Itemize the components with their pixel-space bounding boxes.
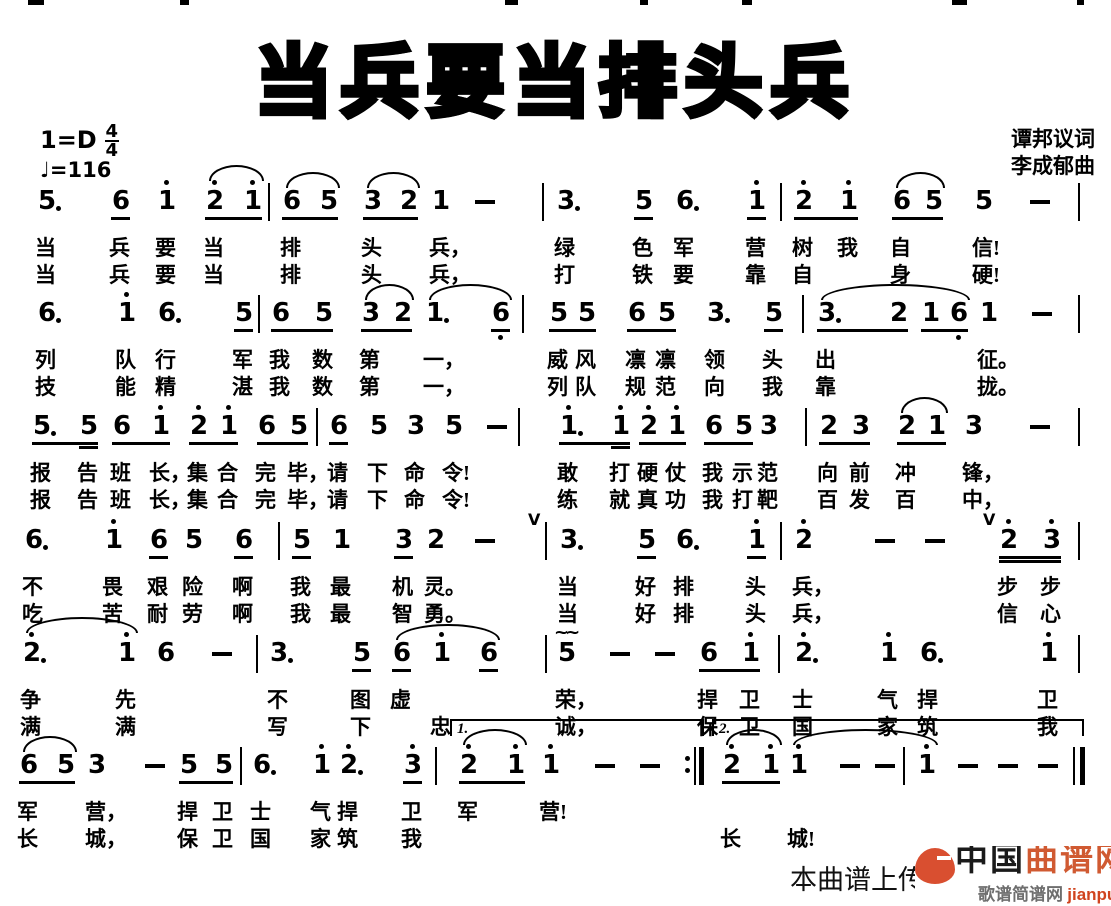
lyric-syllable: 城， bbox=[85, 823, 127, 853]
beam-line bbox=[149, 556, 168, 559]
lyric-syllable: 令! bbox=[442, 484, 470, 514]
beam-line bbox=[111, 217, 130, 220]
tempo-marking: ♩=116 bbox=[40, 158, 111, 182]
lyric-syllable: 长 bbox=[17, 823, 38, 853]
barline bbox=[258, 295, 260, 333]
beam-line bbox=[549, 329, 596, 332]
lyric-syllable: 啊 bbox=[232, 571, 253, 601]
lyric-syllable: 真 bbox=[637, 484, 658, 514]
lyric-syllable: 头 bbox=[745, 571, 766, 601]
lyric-syllable: 不 bbox=[267, 684, 288, 714]
beam-line bbox=[491, 329, 510, 332]
note-digit: 1 bbox=[244, 188, 262, 214]
lyric-syllable: 保 bbox=[177, 823, 198, 853]
note-digit: 5 bbox=[975, 188, 993, 214]
lyric-syllable: 队 bbox=[575, 371, 596, 401]
lyric-syllable: 国 bbox=[250, 823, 271, 853]
scan-artifact bbox=[1077, 0, 1084, 5]
lyric-syllable: 兵， bbox=[792, 571, 834, 601]
octave-dot-high bbox=[111, 519, 116, 524]
beam-line bbox=[627, 329, 676, 332]
note-digit: 2 bbox=[723, 752, 741, 778]
lyric-syllable: 班 bbox=[110, 457, 131, 487]
lyric-syllable: 卫 bbox=[739, 684, 760, 714]
lyric-syllable: 头 bbox=[361, 232, 382, 262]
lyric-syllable: 军 bbox=[457, 796, 478, 826]
augmentation-dot bbox=[694, 545, 699, 550]
beam-line bbox=[394, 556, 413, 559]
lyric-syllable: 毕， bbox=[287, 484, 329, 514]
lyric-syllable: 卫 bbox=[212, 823, 233, 853]
beam-line bbox=[892, 217, 943, 220]
note-digit: 5 bbox=[215, 752, 233, 778]
watermark-site: 歌谱简谱网 bbox=[978, 885, 1067, 904]
note-digit: 3 bbox=[362, 300, 380, 326]
lyric-syllable: 绿 bbox=[554, 232, 575, 262]
beam-line bbox=[352, 669, 371, 672]
barline bbox=[778, 635, 780, 673]
note-digit: 1 bbox=[220, 413, 238, 439]
barline bbox=[545, 635, 547, 673]
song-title: 当兵要当排头兵 bbox=[0, 20, 1111, 132]
scan-artifact bbox=[952, 0, 967, 5]
lyric-syllable: 长， bbox=[149, 484, 191, 514]
octave-dot-high bbox=[846, 180, 851, 185]
lyric-syllable: 兵 bbox=[109, 259, 130, 289]
lyric-syllable: 就 bbox=[609, 484, 630, 514]
time-signature: 44 bbox=[105, 124, 119, 158]
lyric-syllable: 自 bbox=[890, 232, 911, 262]
lyric-syllable: 士 bbox=[792, 684, 813, 714]
lyric-syllable: 艰 bbox=[147, 571, 168, 601]
note-digit: 1 bbox=[742, 640, 760, 666]
note-digit: 3 bbox=[407, 413, 425, 439]
lyric-syllable: 长 bbox=[720, 823, 741, 853]
augmentation-dot bbox=[578, 545, 583, 550]
note-digit: 3 bbox=[852, 413, 870, 439]
note-digit: 2 bbox=[394, 300, 412, 326]
note-digit: 3 bbox=[557, 188, 575, 214]
note-digit: 1 bbox=[432, 188, 450, 214]
beam-line bbox=[234, 329, 253, 332]
beam-line bbox=[722, 781, 780, 784]
lyric-syllable: 啊 bbox=[232, 598, 253, 628]
note-digit: 5 bbox=[293, 527, 311, 553]
lyric-syllable: 争 bbox=[20, 684, 41, 714]
duration-dash bbox=[640, 764, 660, 768]
barline bbox=[1078, 408, 1080, 446]
augmentation-dot bbox=[836, 318, 841, 323]
lyric-syllable: 告 bbox=[77, 457, 98, 487]
lyric-syllable: 规 bbox=[625, 371, 646, 401]
thick-barline bbox=[699, 747, 704, 785]
note-digit: 6 bbox=[628, 300, 646, 326]
note-digit: 5 bbox=[315, 300, 333, 326]
octave-dot-high bbox=[754, 180, 759, 185]
note-digit: 3 bbox=[88, 752, 106, 778]
repeat-dot bbox=[685, 756, 690, 761]
lyric-syllable: 我 bbox=[269, 371, 290, 401]
volta-label: 2. bbox=[719, 721, 730, 738]
logo-icon bbox=[915, 848, 955, 884]
note-digit: 5 bbox=[80, 413, 98, 439]
note-digit: 5 bbox=[638, 527, 656, 553]
lyric-syllable: 当 bbox=[35, 259, 56, 289]
lyric-syllable: 第 bbox=[359, 371, 380, 401]
note-digit: 5 bbox=[235, 300, 253, 326]
octave-dot-high bbox=[548, 744, 553, 749]
lyric-syllable: 营! bbox=[539, 796, 567, 826]
beam-line bbox=[897, 442, 946, 445]
octave-dot-high bbox=[158, 405, 163, 410]
note-digit: 5 bbox=[185, 527, 203, 553]
lyric-syllable: 险 bbox=[182, 571, 203, 601]
barline bbox=[802, 295, 804, 333]
lyric-syllable: 先 bbox=[115, 684, 136, 714]
lyric-syllable: 令! bbox=[442, 457, 470, 487]
breath-mark: V bbox=[983, 510, 995, 529]
lyric-syllable: 满 bbox=[115, 711, 136, 741]
note-digit: 5 bbox=[578, 300, 596, 326]
lyric-syllable: 列 bbox=[35, 344, 56, 374]
lyric-syllable: 军 bbox=[673, 232, 694, 262]
note-digit: 6 bbox=[283, 188, 301, 214]
lyric-syllable: 合 bbox=[217, 457, 238, 487]
note-digit: 1 bbox=[840, 188, 858, 214]
composer-credit: 李成郁曲 bbox=[1011, 153, 1095, 180]
augmentation-dot bbox=[358, 770, 363, 775]
lyric-syllable: 我 bbox=[762, 371, 783, 401]
duration-dash bbox=[840, 764, 860, 768]
lyric-syllable: 精 bbox=[155, 371, 176, 401]
barline bbox=[1078, 183, 1080, 221]
barline bbox=[545, 522, 547, 560]
lyric-syllable: 要 bbox=[155, 232, 176, 262]
beam-line-2 bbox=[999, 560, 1061, 563]
lyric-syllable: 步 bbox=[1040, 571, 1061, 601]
lyric-syllable: 第 bbox=[359, 344, 380, 374]
beam-line-2 bbox=[611, 446, 630, 449]
beam-line bbox=[403, 781, 422, 784]
lyric-syllable: 营， bbox=[85, 796, 127, 826]
duration-dash bbox=[145, 764, 165, 768]
lyric-syllable: 下 bbox=[367, 457, 388, 487]
lyric-syllable: 数 bbox=[312, 371, 333, 401]
lyric-syllable: 心 bbox=[1040, 598, 1061, 628]
note-digit: 2 bbox=[640, 413, 658, 439]
watermark-domain: jianpu.cn bbox=[1067, 885, 1111, 904]
lyric-syllable: 领 bbox=[704, 344, 725, 374]
breath-mark: V bbox=[528, 510, 540, 529]
octave-dot-high bbox=[346, 744, 351, 749]
octave-dot-high bbox=[754, 519, 759, 524]
note-digit: 2 bbox=[400, 188, 418, 214]
lyric-syllable: 能 bbox=[115, 371, 136, 401]
note-digit: 1 bbox=[790, 752, 808, 778]
note-digit: 5 bbox=[635, 188, 653, 214]
repeat-dot bbox=[685, 768, 690, 773]
trill-mark: ~~ bbox=[554, 622, 576, 643]
note-digit: 2 bbox=[460, 752, 478, 778]
lyric-syllable: 命 bbox=[404, 457, 425, 487]
volta-bracket: 2. bbox=[712, 719, 1084, 736]
octave-dot-high bbox=[410, 744, 415, 749]
lyric-syllable: 图 bbox=[350, 684, 371, 714]
note-digit: 3 bbox=[760, 413, 778, 439]
lyric-syllable: 最 bbox=[330, 598, 351, 628]
lyric-syllable: 长， bbox=[149, 457, 191, 487]
thick-barline bbox=[1080, 747, 1085, 785]
slur-arc bbox=[821, 284, 970, 300]
lyric-syllable: 兵 bbox=[109, 232, 130, 262]
note-digit: 3 bbox=[364, 188, 382, 214]
barline bbox=[522, 295, 524, 333]
lyric-syllable: 告 bbox=[77, 484, 98, 514]
duration-dash bbox=[655, 652, 675, 656]
note-digit: 1 bbox=[928, 413, 946, 439]
lyric-syllable: 硬 bbox=[637, 457, 658, 487]
beam-line bbox=[699, 669, 760, 672]
note-digit: 6 bbox=[393, 640, 411, 666]
beam-line bbox=[764, 329, 783, 332]
note-digit: 2 bbox=[206, 188, 224, 214]
duration-dash bbox=[487, 425, 507, 429]
beam-line bbox=[637, 556, 656, 559]
note-digit: 1 bbox=[980, 300, 998, 326]
lyric-syllable: 合 bbox=[217, 484, 238, 514]
note-digit: 1 bbox=[668, 413, 686, 439]
beam-line bbox=[747, 556, 766, 559]
octave-dot-high bbox=[618, 405, 623, 410]
barline bbox=[1078, 635, 1080, 673]
lyric-syllable: 排 bbox=[673, 571, 694, 601]
sheet-music-page: 当兵要当排头兵 1=D44 ♩=116 谭邦议词 李成郁曲 5当当6兵兵1要要2… bbox=[0, 0, 1111, 906]
barline bbox=[256, 635, 258, 673]
note-digit: 5 bbox=[765, 300, 783, 326]
beam-line bbox=[271, 329, 333, 332]
octave-dot-high bbox=[674, 405, 679, 410]
lyric-syllable: 虚 bbox=[390, 684, 411, 714]
duration-dash bbox=[212, 652, 232, 656]
note-digit: 2 bbox=[340, 752, 358, 778]
beam-line bbox=[282, 217, 338, 220]
lyric-syllable: 灵。 bbox=[424, 571, 466, 601]
lyric-syllable: 捍 bbox=[177, 796, 198, 826]
barline bbox=[903, 747, 905, 785]
duration-dash bbox=[875, 764, 895, 768]
lyric-syllable: 捍 bbox=[337, 796, 358, 826]
duration-dash bbox=[1030, 425, 1050, 429]
lyric-syllable: 我 bbox=[401, 823, 422, 853]
site-logo-inner: 中国曲谱网 bbox=[915, 846, 1111, 884]
beam-line bbox=[205, 217, 262, 220]
note-digit: 1 bbox=[762, 752, 780, 778]
note-digit: 6 bbox=[893, 188, 911, 214]
slur-arc bbox=[901, 397, 948, 413]
octave-dot-high bbox=[164, 180, 169, 185]
note-digit: 2 bbox=[427, 527, 445, 553]
note-digit: 5 bbox=[353, 640, 371, 666]
scan-artifact bbox=[28, 0, 44, 5]
lyric-syllable: 集 bbox=[187, 484, 208, 514]
lyric-syllable: 家 bbox=[310, 823, 331, 853]
note-digit: 2 bbox=[820, 413, 838, 439]
note-digit: 6 bbox=[113, 413, 131, 439]
lyric-syllable: 当 bbox=[203, 232, 224, 262]
augmentation-dot bbox=[444, 318, 449, 323]
repeat-end-barline bbox=[685, 747, 709, 785]
note-digit: 1 bbox=[560, 413, 578, 439]
watermark: 歌谱简谱网 jianpu.cn bbox=[978, 880, 1111, 905]
tempo-value: =116 bbox=[50, 158, 111, 182]
note-digit: 6 bbox=[705, 413, 723, 439]
lyric-syllable: 示 bbox=[732, 457, 753, 487]
thin-barline bbox=[694, 747, 696, 785]
barline bbox=[780, 183, 782, 221]
note-digit: 3 bbox=[560, 527, 578, 553]
lyric-syllable: 向 bbox=[704, 371, 725, 401]
key-text: 1=D bbox=[40, 126, 97, 154]
scan-artifact bbox=[180, 0, 189, 5]
lyric-syllable: 出 bbox=[815, 344, 836, 374]
lyric-syllable: 好 bbox=[635, 598, 656, 628]
note-digit: 5 bbox=[735, 413, 753, 439]
note-digit: 3 bbox=[395, 527, 413, 553]
lyric-syllable: 劳 bbox=[182, 598, 203, 628]
augmentation-dot bbox=[41, 658, 46, 663]
lyric-syllable: 我 bbox=[290, 571, 311, 601]
lyric-syllable: 凛 bbox=[655, 344, 676, 374]
note-digit: 1 bbox=[507, 752, 525, 778]
lyric-syllable: 请 bbox=[327, 457, 348, 487]
lyric-syllable: 百 bbox=[817, 484, 838, 514]
note-digit: 6 bbox=[157, 640, 175, 666]
note-digit: 6 bbox=[25, 527, 43, 553]
duration-dash bbox=[925, 539, 945, 543]
slur-arc bbox=[367, 172, 420, 188]
lyric-syllable: 班 bbox=[110, 484, 131, 514]
credits: 谭邦议词 李成郁曲 bbox=[1011, 126, 1095, 180]
lyric-syllable: 靠 bbox=[815, 371, 836, 401]
note-digit: 1 bbox=[426, 300, 444, 326]
barline bbox=[1078, 522, 1080, 560]
lyric-syllable: 功 bbox=[665, 484, 686, 514]
note-digit: 1 bbox=[118, 300, 136, 326]
augmentation-dot bbox=[938, 658, 943, 663]
note-digit: 6 bbox=[950, 300, 968, 326]
volta-bracket: 1. bbox=[450, 719, 704, 736]
duration-dash bbox=[475, 539, 495, 543]
lyric-syllable: 范 bbox=[757, 457, 778, 487]
note-digit: 6 bbox=[258, 413, 276, 439]
lyric-syllable: 冲 bbox=[895, 457, 916, 487]
lyric-syllable: 耐 bbox=[147, 598, 168, 628]
lyric-syllable: 不 bbox=[22, 571, 43, 601]
lyric-syllable: 卫 bbox=[212, 796, 233, 826]
lyric-syllable: 队 bbox=[115, 344, 136, 374]
lyric-syllable: 信! bbox=[972, 232, 1000, 262]
octave-dot-high bbox=[801, 632, 806, 637]
beam-line bbox=[189, 442, 238, 445]
beam-line bbox=[817, 329, 908, 332]
lyric-syllable: 自 bbox=[792, 259, 813, 289]
note-digit: 5 bbox=[38, 188, 56, 214]
lyric-syllable: 一， bbox=[423, 371, 465, 401]
beam-line bbox=[292, 556, 311, 559]
note-digit: 6 bbox=[676, 527, 694, 553]
lyric-syllable: 气 bbox=[310, 796, 331, 826]
lyric-syllable: 排 bbox=[280, 232, 301, 262]
lyric-syllable: 当 bbox=[35, 232, 56, 262]
augmentation-dot bbox=[51, 431, 56, 436]
lyric-syllable: 要 bbox=[673, 259, 694, 289]
time-numerator: 4 bbox=[105, 121, 118, 142]
octave-dot-high bbox=[801, 180, 806, 185]
duration-dash bbox=[595, 764, 615, 768]
slur-arc bbox=[209, 165, 264, 181]
lyric-syllable: 头 bbox=[762, 344, 783, 374]
lyric-syllable: 畏 bbox=[102, 571, 123, 601]
note-digit: 3 bbox=[1043, 527, 1061, 553]
lyric-syllable: 靶 bbox=[757, 484, 778, 514]
note-digit: 6 bbox=[676, 188, 694, 214]
lyric-syllable: 完 bbox=[255, 457, 276, 487]
note-digit: 1 bbox=[118, 640, 136, 666]
note-digit: 2 bbox=[795, 527, 813, 553]
augmentation-dot bbox=[578, 431, 583, 436]
lyric-syllable: 我 bbox=[290, 598, 311, 628]
beam-line bbox=[704, 442, 753, 445]
note-digit: 5 bbox=[658, 300, 676, 326]
augmentation-dot bbox=[43, 545, 48, 550]
beam-line bbox=[921, 329, 968, 332]
lyric-syllable: 当 bbox=[203, 259, 224, 289]
lyric-syllable: 下 bbox=[350, 711, 371, 741]
beam-line bbox=[794, 217, 858, 220]
beam-line bbox=[392, 669, 411, 672]
octave-dot-low bbox=[956, 335, 961, 340]
lyric-syllable: 完 bbox=[255, 484, 276, 514]
beam-line bbox=[32, 442, 98, 445]
note-digit: 3 bbox=[270, 640, 288, 666]
octave-dot-high bbox=[196, 405, 201, 410]
note-digit: 3 bbox=[818, 300, 836, 326]
key-signature: 1=D44 bbox=[40, 124, 119, 158]
lyric-syllable: 行 bbox=[155, 344, 176, 374]
barline bbox=[805, 408, 807, 446]
duration-dash bbox=[1038, 764, 1058, 768]
beam-line bbox=[19, 781, 75, 784]
lyric-syllable: 风 bbox=[575, 344, 596, 374]
note-digit: 1 bbox=[748, 527, 766, 553]
lyric-syllable: 军 bbox=[17, 796, 38, 826]
quarter-note-icon: ♩ bbox=[40, 158, 50, 182]
note-digit: 6 bbox=[480, 640, 498, 666]
beam-line bbox=[747, 217, 766, 220]
lyric-syllable: 树 bbox=[792, 232, 813, 262]
slur-arc bbox=[896, 172, 945, 188]
augmentation-dot bbox=[288, 658, 293, 663]
note-digit: 2 bbox=[890, 300, 908, 326]
lyric-syllable: 敢 bbox=[557, 457, 578, 487]
note-digit: 1 bbox=[158, 188, 176, 214]
note-digit: 1 bbox=[313, 752, 331, 778]
lyric-syllable: 我 bbox=[269, 344, 290, 374]
lyric-syllable: 湛 bbox=[232, 371, 253, 401]
note-digit: 1 bbox=[880, 640, 898, 666]
note-digit: 6 bbox=[330, 413, 348, 439]
beam-line bbox=[999, 556, 1061, 559]
